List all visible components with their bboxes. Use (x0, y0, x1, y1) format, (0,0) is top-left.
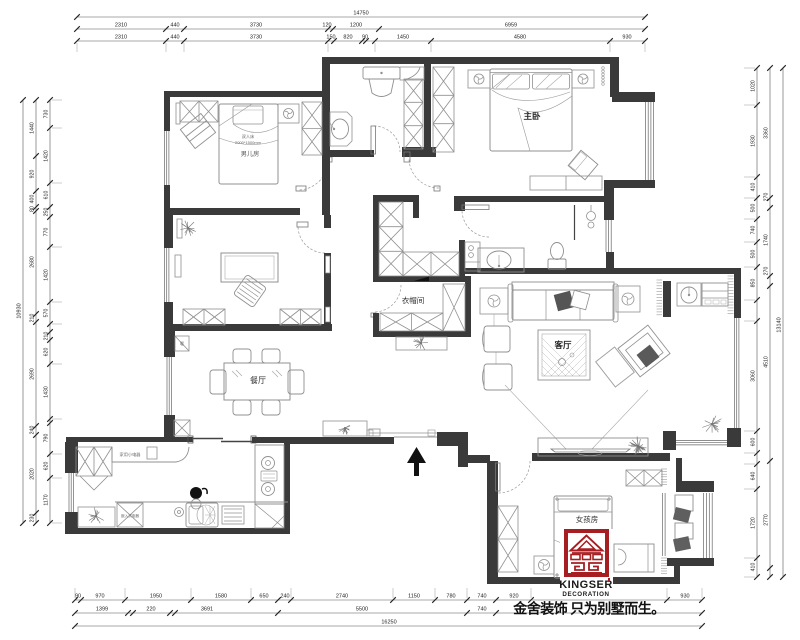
svg-text:3730: 3730 (250, 23, 262, 29)
svg-text:220: 220 (146, 607, 155, 613)
svg-text:1450: 1450 (397, 35, 409, 41)
svg-text:640: 640 (751, 472, 757, 481)
svg-text:2770: 2770 (764, 514, 770, 526)
svg-text:240: 240 (30, 426, 36, 435)
svg-text:1720: 1720 (751, 517, 757, 529)
svg-text:暖: 暖 (180, 340, 184, 346)
svg-text:1399: 1399 (96, 607, 108, 613)
svg-text:1420: 1420 (44, 150, 50, 162)
svg-text:1430: 1430 (44, 386, 50, 398)
svg-text:3691: 3691 (201, 607, 213, 613)
svg-text:730: 730 (44, 110, 50, 119)
svg-text:440: 440 (170, 23, 179, 29)
svg-text:衣帽间: 衣帽间 (402, 295, 425, 305)
svg-text:2680: 2680 (30, 256, 36, 268)
svg-text:920: 920 (30, 170, 36, 179)
svg-text:1740: 1740 (764, 234, 770, 246)
svg-text:女孩房: 女孩房 (576, 514, 599, 524)
svg-text:10930: 10930 (17, 303, 23, 318)
svg-text:2740: 2740 (336, 594, 348, 600)
svg-text:1950: 1950 (150, 594, 162, 600)
svg-text:270: 270 (764, 193, 770, 202)
svg-text:740: 740 (751, 226, 757, 235)
svg-text:740: 740 (477, 594, 486, 600)
svg-text:家用小电器: 家用小电器 (120, 451, 142, 458)
svg-text:4580: 4580 (514, 35, 526, 41)
svg-text:410: 410 (751, 183, 757, 192)
svg-text:2690: 2690 (30, 368, 36, 380)
svg-text:80: 80 (30, 206, 36, 212)
svg-text:850: 850 (751, 279, 757, 288)
svg-text:1170: 1170 (44, 494, 50, 505)
svg-text:500: 500 (751, 204, 757, 213)
svg-text:3730: 3730 (250, 35, 262, 41)
svg-text:16250: 16250 (381, 620, 396, 626)
svg-text:600: 600 (751, 438, 757, 447)
svg-text:400: 400 (30, 195, 36, 204)
svg-text:90: 90 (75, 594, 81, 600)
svg-text:820: 820 (343, 35, 352, 41)
svg-text:120: 120 (322, 23, 331, 29)
svg-text:740: 740 (477, 607, 486, 613)
svg-text:双人床: 双人床 (242, 133, 255, 140)
svg-text:790: 790 (44, 434, 50, 443)
svg-text:2000*1500mm: 2000*1500mm (235, 140, 262, 145)
svg-text:240: 240 (280, 594, 289, 600)
svg-text:270: 270 (764, 267, 770, 276)
svg-text:13140: 13140 (777, 317, 783, 332)
svg-text:1440: 1440 (30, 122, 36, 134)
svg-text:1420: 1420 (44, 269, 50, 281)
svg-text:620: 620 (44, 462, 50, 471)
svg-text:90: 90 (362, 35, 368, 41)
svg-text:2310: 2310 (115, 23, 127, 29)
svg-text:1020: 1020 (751, 80, 757, 92)
svg-text:5500: 5500 (356, 607, 368, 613)
svg-text:2310: 2310 (115, 35, 127, 41)
svg-text:620: 620 (44, 348, 50, 357)
svg-text:230: 230 (30, 514, 36, 523)
svg-text:4510: 4510 (764, 356, 770, 368)
svg-text:500: 500 (751, 250, 757, 259)
svg-text:650: 650 (259, 594, 268, 600)
svg-text:210: 210 (30, 314, 36, 323)
svg-text:1150: 1150 (408, 594, 420, 600)
svg-text:DECORATION: DECORATION (562, 591, 609, 598)
svg-text:210: 210 (44, 332, 50, 341)
svg-text:610: 610 (44, 191, 50, 200)
svg-text:餐厅: 餐厅 (250, 376, 266, 385)
svg-text:6959: 6959 (505, 23, 517, 29)
svg-text:250: 250 (44, 208, 50, 217)
svg-text:440: 440 (170, 35, 179, 41)
svg-text:主卧: 主卧 (523, 111, 541, 121)
svg-text:970: 970 (95, 594, 104, 600)
svg-text:客厅: 客厅 (553, 340, 572, 350)
svg-text:嵌入式电器: 嵌入式电器 (121, 513, 139, 518)
svg-text:930: 930 (680, 594, 689, 600)
svg-text:14750: 14750 (353, 11, 368, 17)
svg-text:1580: 1580 (215, 594, 227, 600)
svg-text:930: 930 (622, 35, 631, 41)
svg-text:410: 410 (751, 563, 757, 572)
svg-text:1930: 1930 (751, 135, 757, 147)
svg-text:1200: 1200 (350, 23, 362, 29)
svg-text:150: 150 (326, 35, 335, 41)
svg-text:780: 780 (446, 594, 455, 600)
svg-text:770: 770 (44, 228, 50, 237)
svg-text:男儿房: 男儿房 (241, 150, 260, 158)
svg-text:3360: 3360 (764, 127, 770, 139)
svg-text:2020: 2020 (30, 468, 36, 480)
svg-text:金舍装饰 只为别墅而生。: 金舍装饰 只为别墅而生。 (512, 601, 665, 618)
svg-text:KINGSER: KINGSER (559, 579, 613, 591)
svg-text:3060: 3060 (751, 370, 757, 382)
svg-text:570: 570 (44, 309, 50, 318)
svg-text:920: 920 (509, 594, 518, 600)
